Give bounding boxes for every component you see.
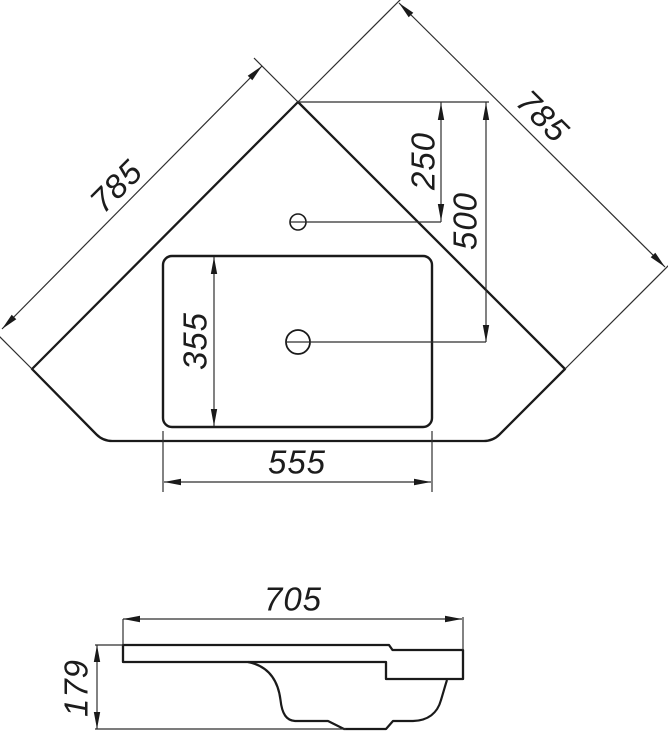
arrow-500-bottom [483, 325, 489, 342]
deck-profile [123, 645, 463, 679]
arrow-355-top [211, 257, 217, 274]
arrow-500-top [483, 103, 489, 120]
dim-label-500: 500 [449, 192, 482, 250]
arrow-179-bottom [94, 712, 100, 729]
technical-drawing-page: 785 785 250 500 355 555 705 179 [0, 0, 668, 733]
arrow-179-top [94, 645, 100, 662]
top-view [32, 102, 565, 441]
top-view-dimensions [0, 0, 668, 492]
arrow-705-left [123, 616, 140, 622]
arrow-250-bottom [438, 204, 444, 221]
dim-label-250: 250 [407, 132, 440, 190]
side-view [123, 645, 463, 729]
arrow-555-right [414, 479, 431, 485]
dim-line-785-left [2, 66, 262, 329]
bowl-profile [248, 662, 447, 729]
dim-label-555: 555 [268, 446, 326, 479]
countertop-outline [32, 102, 565, 441]
dim-label-355: 355 [179, 312, 212, 370]
dim-label-179: 179 [60, 659, 93, 717]
side-view-dimensions [95, 617, 463, 729]
ext-line-785-right-apex [298, 0, 407, 102]
ext-line-785-left-corner [0, 333, 32, 369]
dim-label-705: 705 [264, 583, 322, 616]
arrow-250-top [438, 103, 444, 120]
ext-line-785-left-apex [254, 58, 298, 102]
washbasin-drawing [0, 0, 668, 733]
arrow-355-bottom [211, 409, 217, 426]
ext-line-785-right-corner [565, 264, 668, 369]
arrow-705-right [445, 616, 462, 622]
arrow-555-left [164, 479, 181, 485]
